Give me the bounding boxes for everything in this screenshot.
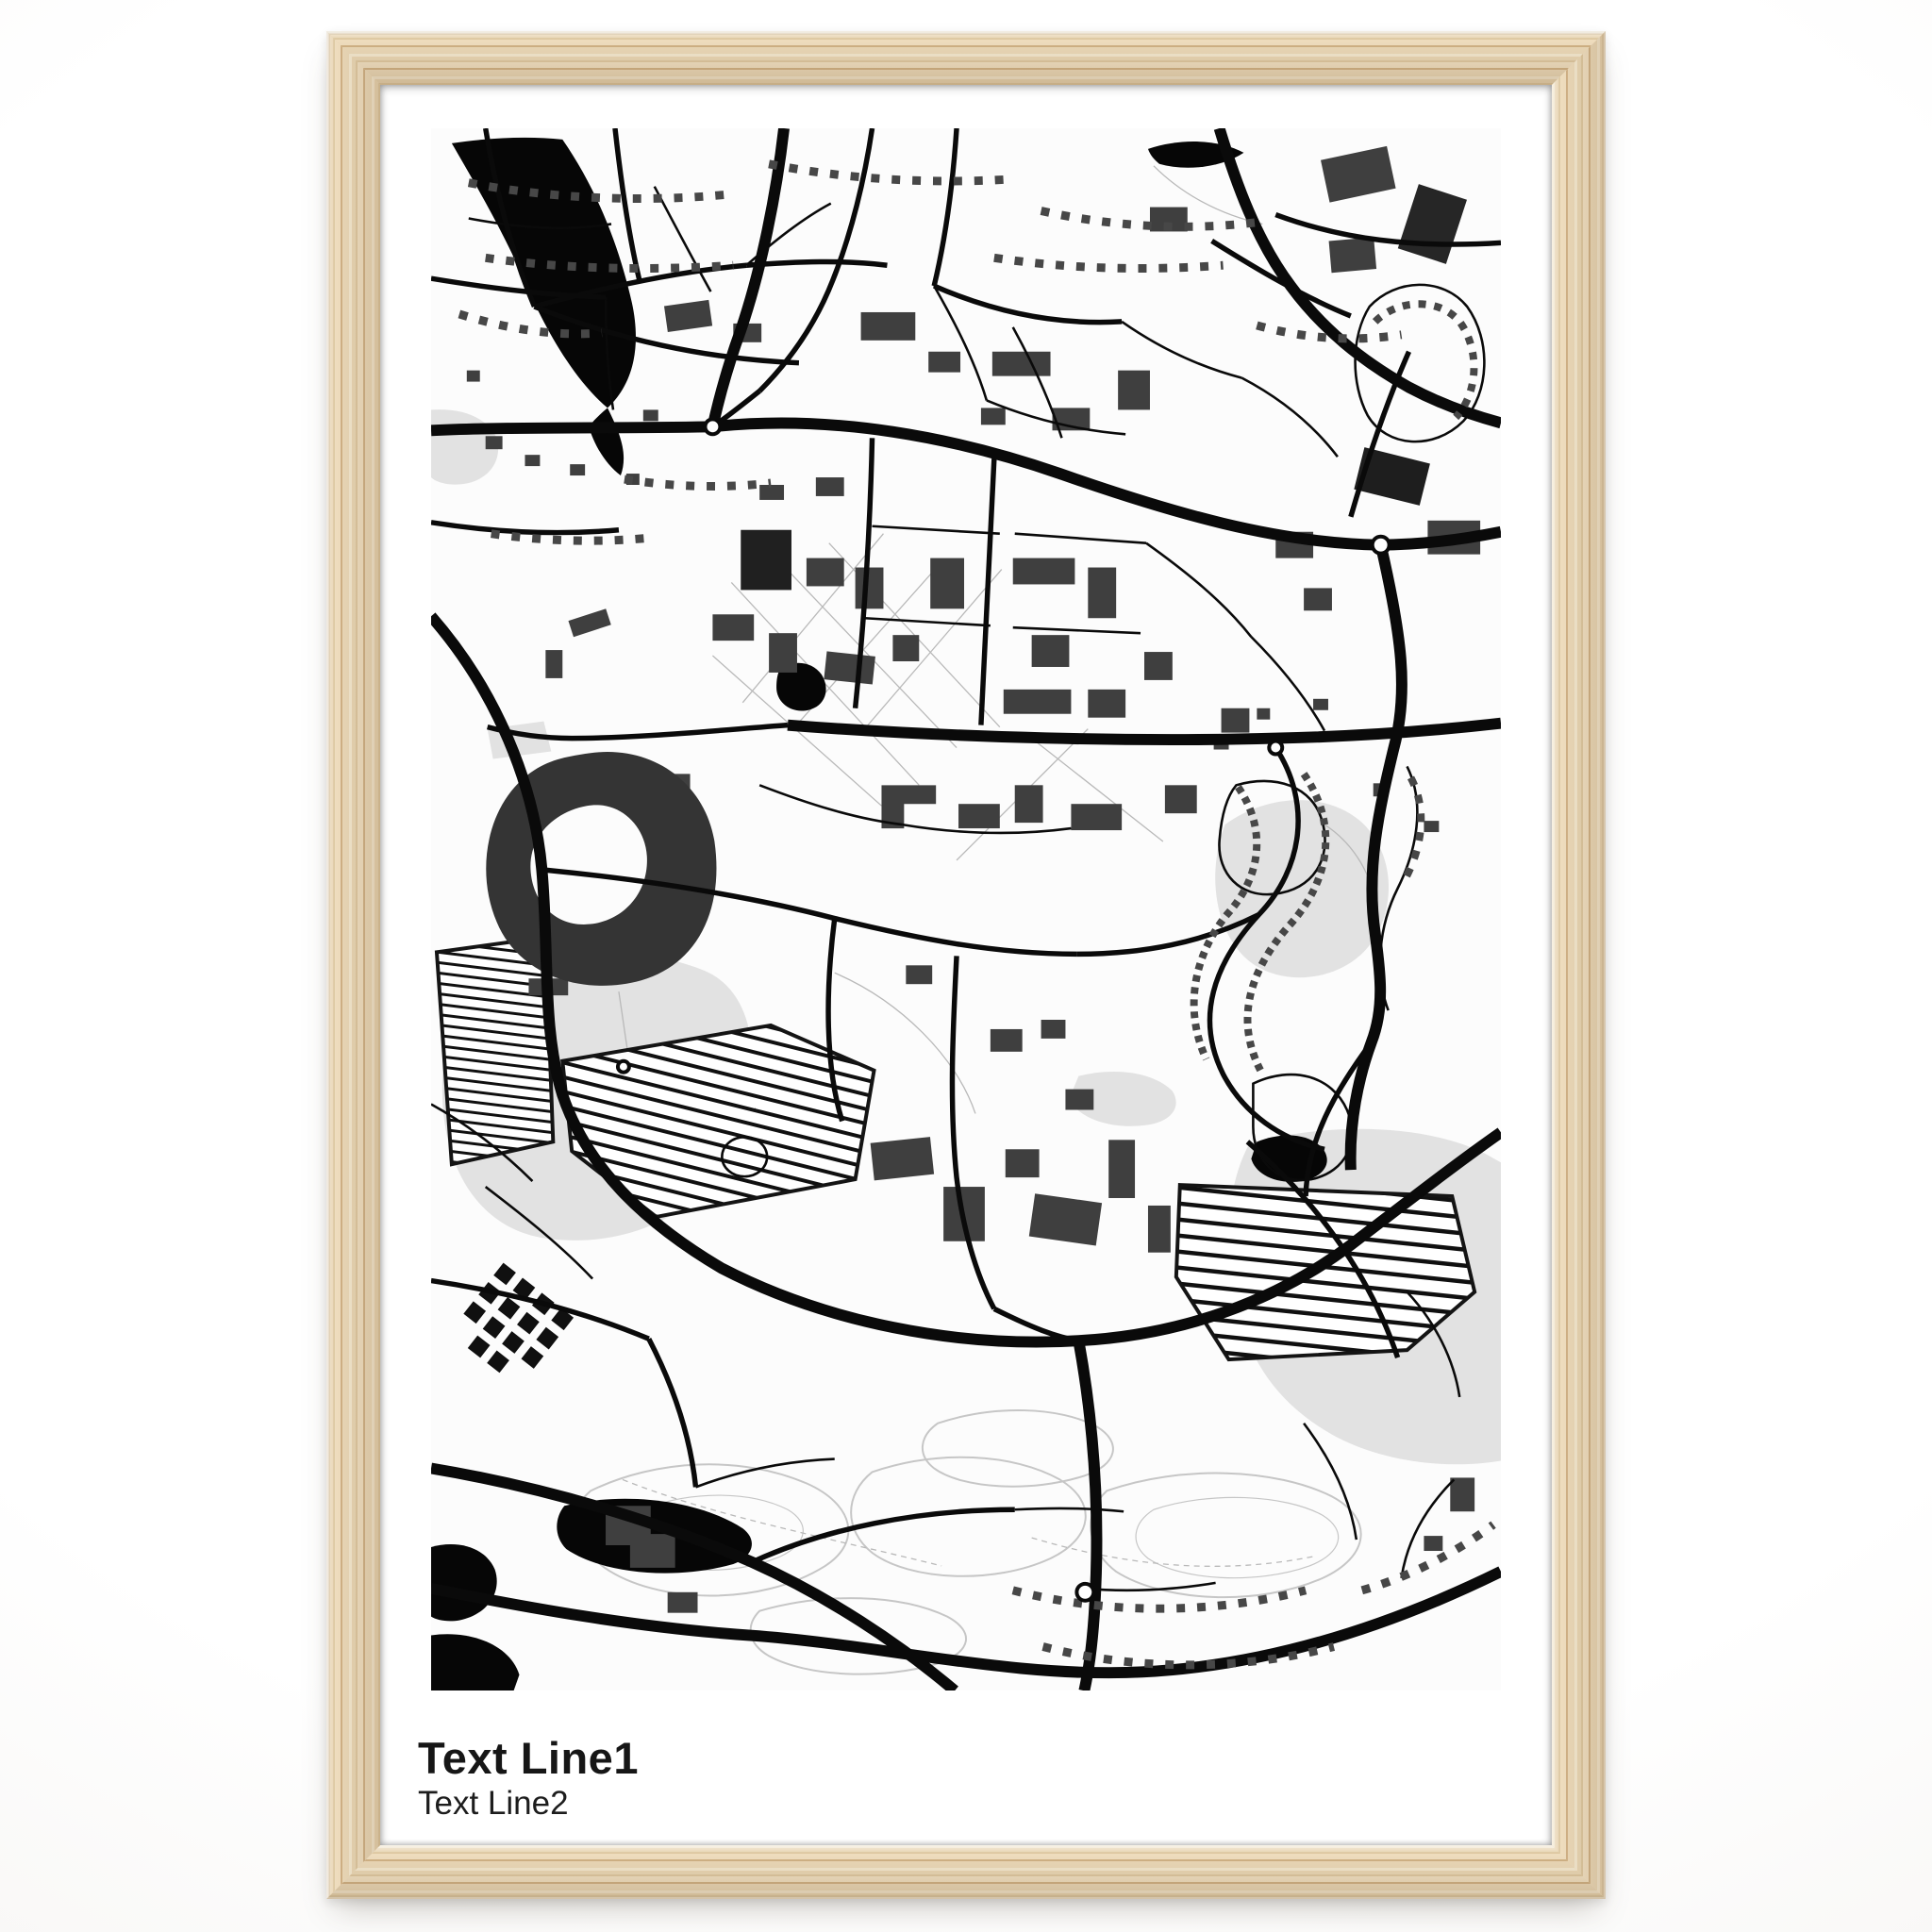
poster-title: Text Line1	[418, 1734, 639, 1783]
frame-edge-right	[1552, 31, 1606, 1899]
frame-edge-bottom	[326, 1845, 1606, 1899]
map-print	[431, 128, 1501, 1690]
frame-edge-top	[326, 31, 1606, 85]
poster: Text Line1 Text Line2	[380, 85, 1552, 1845]
poster-subtitle: Text Line2	[418, 1785, 639, 1823]
poster-caption: Text Line1 Text Line2	[418, 1734, 639, 1823]
product-photo: Text Line1 Text Line2	[0, 0, 1932, 1932]
frame-edge-left	[326, 31, 380, 1899]
map-graphic	[431, 128, 1501, 1690]
wood-frame: Text Line1 Text Line2	[326, 31, 1606, 1899]
